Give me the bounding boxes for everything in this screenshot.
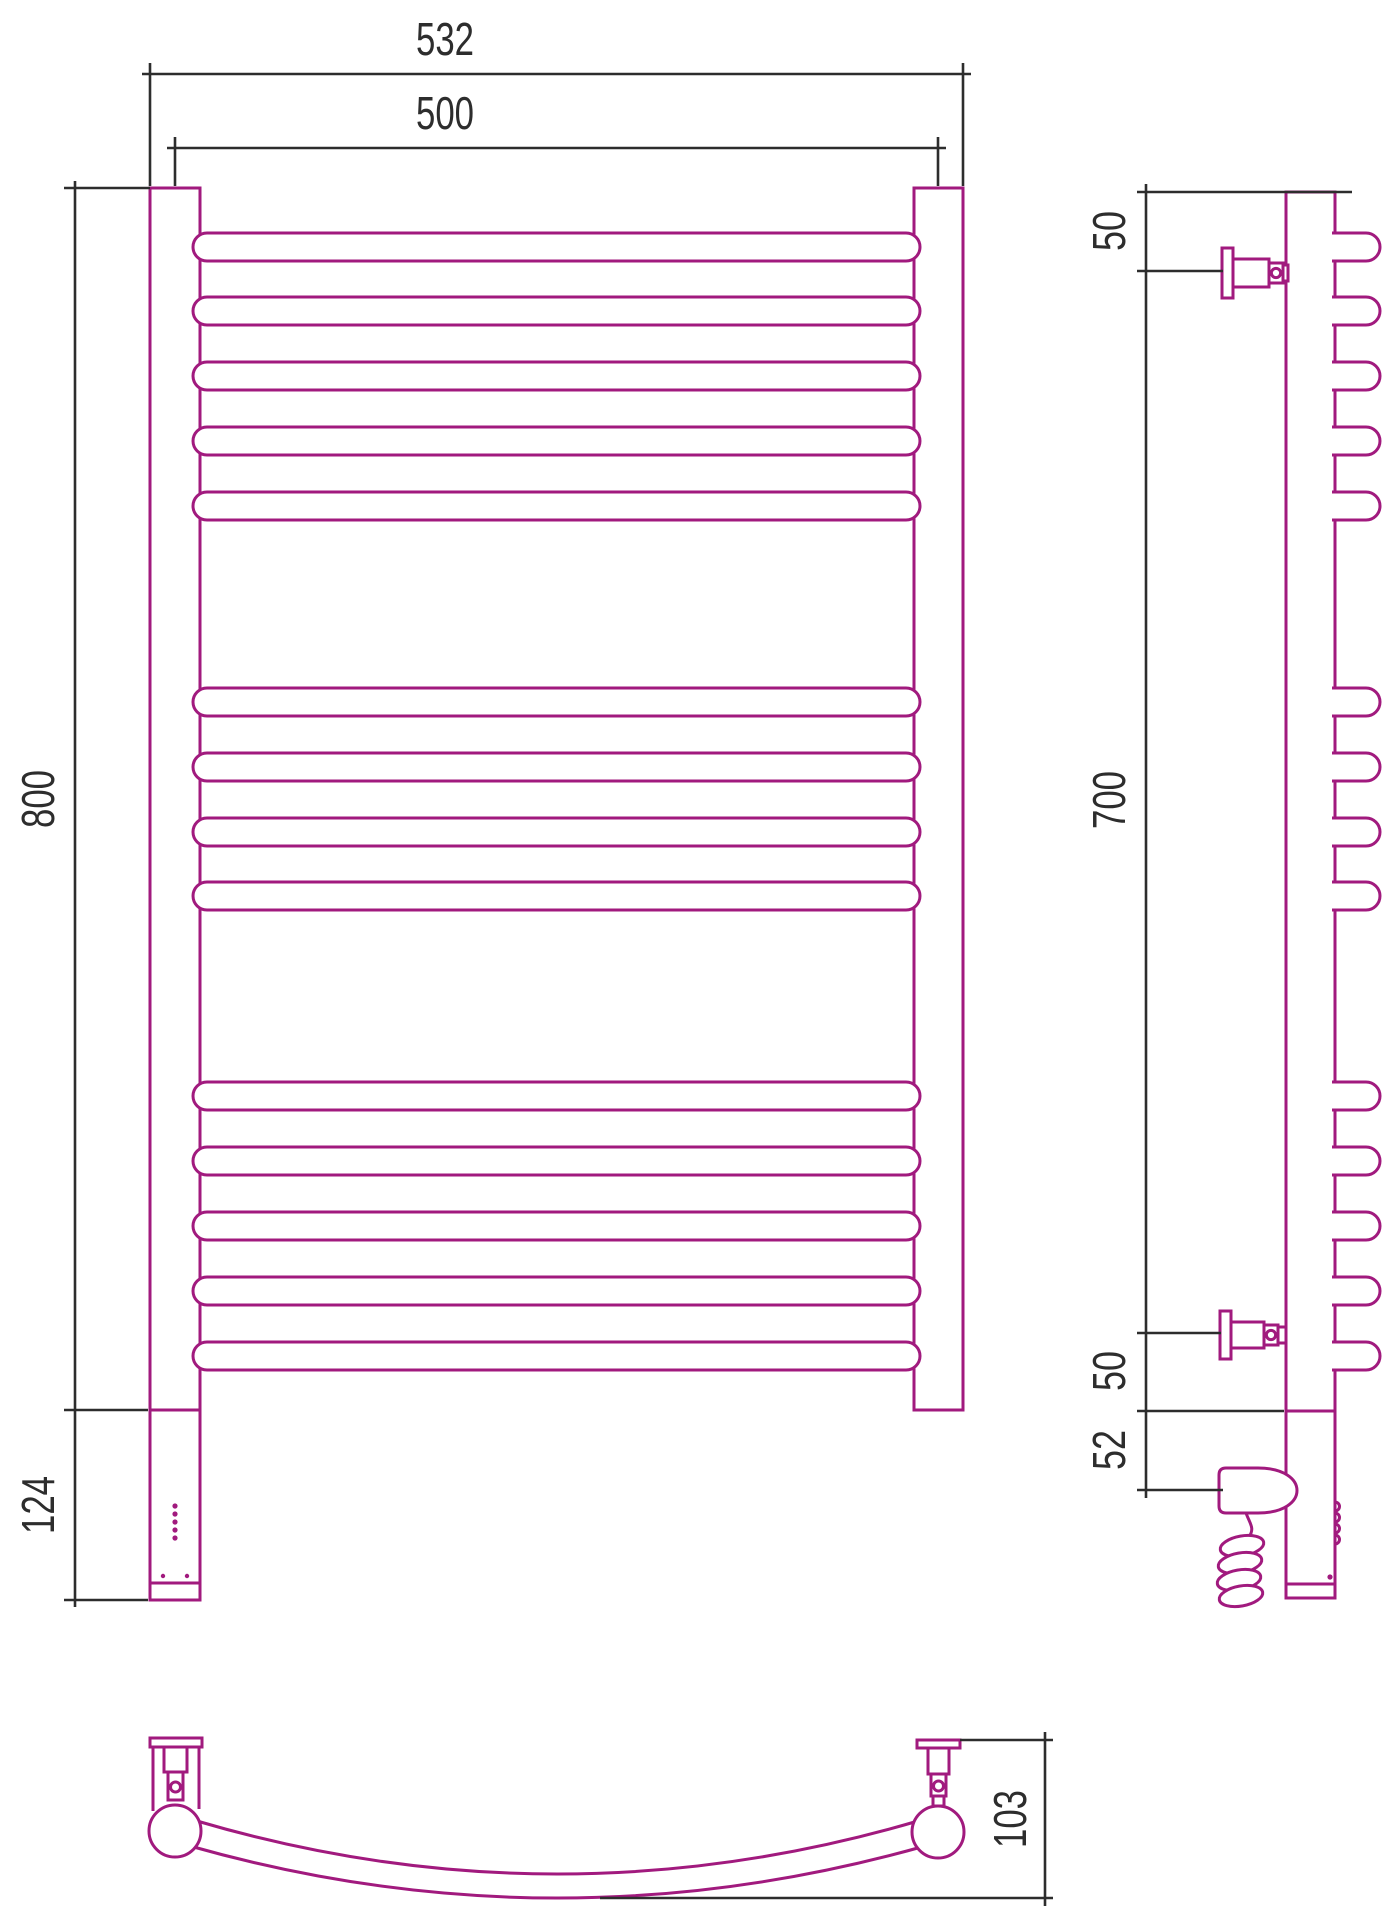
dim-label-532: 532 [416,13,474,65]
screw-dot [1327,1574,1332,1579]
towel-rail [193,1212,920,1240]
coiled-cable [1216,1513,1266,1610]
dim-center-span: 500 [167,87,946,186]
dim-overall-width: 532 [142,13,971,186]
rail-end [1332,688,1380,716]
towel-rail [193,688,920,716]
technical-drawing: 532 500 800 124 50 700 50 [0,0,1400,1920]
screw-dot [185,1574,189,1578]
rail-end [1332,1212,1380,1240]
wall-bracket-top [1222,248,1288,298]
drawing-canvas: 532 500 800 124 50 700 50 [0,0,1400,1920]
towel-rail [193,1342,920,1370]
curved-rail-front-edge [197,1821,918,1874]
rail-end [1332,818,1380,846]
dim-label-700: 700 [1083,771,1135,829]
rail-end [1332,1342,1380,1370]
towel-rail [193,297,920,325]
towel-rail [193,492,920,520]
dim-label-50-top: 50 [1083,211,1135,251]
towel-rail [193,882,920,910]
rail-end [1332,492,1380,520]
dim-label-52: 52 [1083,1430,1135,1470]
dim-label-500: 500 [416,87,474,139]
rail-end [1332,1147,1380,1175]
dim-label-124: 124 [12,1476,64,1534]
curved-rail-back-edge [190,1846,925,1898]
top-view-bracket-left [150,1738,202,1811]
rail-end [1332,1277,1380,1305]
towel-rail [193,427,920,455]
dim-label-800: 800 [12,770,64,828]
dim-depth: 103 [600,1732,1053,1906]
towel-rail [193,233,920,261]
rail-end [1332,297,1380,325]
top-view [149,1738,964,1898]
towel-rail [193,1082,920,1110]
side-collector-tube [1286,192,1335,1411]
towel-rail [193,1147,920,1175]
heater-housing-side [1286,1411,1335,1598]
rail-end [1332,427,1380,455]
front-view [150,188,963,1600]
dim-label-103: 103 [984,1790,1036,1848]
left-collector-section [149,1805,201,1857]
heating-element-head [1219,1468,1297,1513]
rail-end [1332,882,1380,910]
dim-height: 800 124 [12,181,150,1607]
towel-rail [193,1277,920,1305]
towel-rail [193,362,920,390]
side-view [1216,192,1380,1610]
wall-bracket-bottom [1220,1311,1286,1359]
rail-end [1332,362,1380,390]
rail-end [1332,233,1380,261]
rail-end [1332,1082,1380,1110]
towel-rail [193,753,920,781]
right-collector-section [912,1806,964,1858]
towel-rail [193,818,920,846]
top-view-bracket-right [917,1740,960,1806]
rail-end [1332,753,1380,781]
screw-dot [161,1574,165,1578]
dim-label-50-bottom: 50 [1083,1351,1135,1391]
